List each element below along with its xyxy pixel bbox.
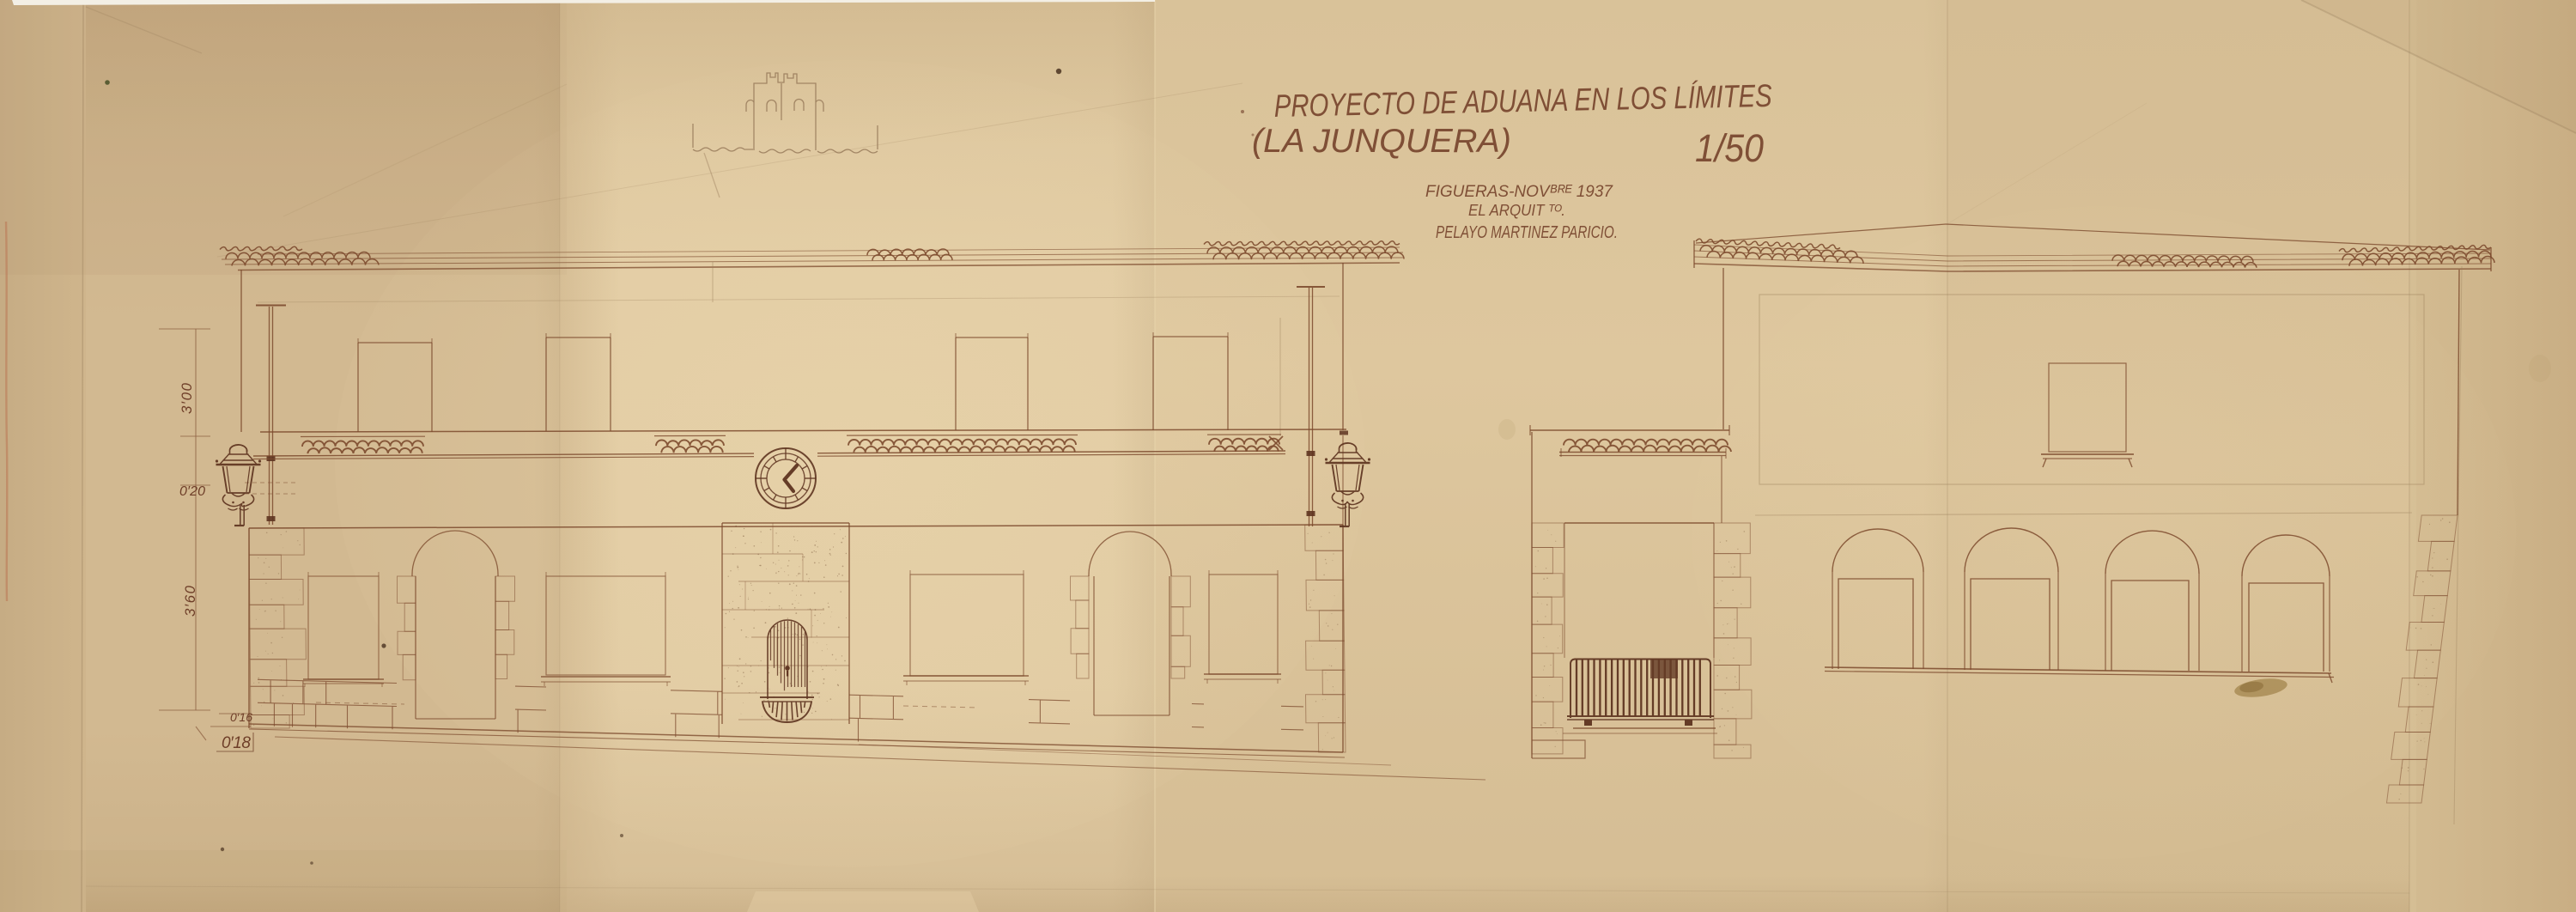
- svg-text:(LA JUNQUERA): (LA JUNQUERA): [1252, 123, 1511, 160]
- svg-text:FIGUERAS-NOVᴮᴿᴱ 1937: FIGUERAS-NOVᴮᴿᴱ 1937: [1425, 183, 1613, 201]
- svg-text:0′16: 0′16: [230, 710, 252, 724]
- svg-text:3′60: 3′60: [182, 585, 198, 617]
- svg-text:1/50: 1/50: [1695, 126, 1764, 170]
- svg-text:0′20: 0′20: [179, 484, 205, 499]
- svg-text:0′18: 0′18: [222, 734, 251, 752]
- svg-text:EL ARQUIT ᵀᴼ.: EL ARQUIT ᵀᴼ.: [1468, 202, 1565, 219]
- svg-text:3′00: 3′00: [179, 382, 195, 414]
- svg-text:PELAYO MARTINEZ PARICIO.: PELAYO MARTINEZ PARICIO.: [1436, 223, 1618, 242]
